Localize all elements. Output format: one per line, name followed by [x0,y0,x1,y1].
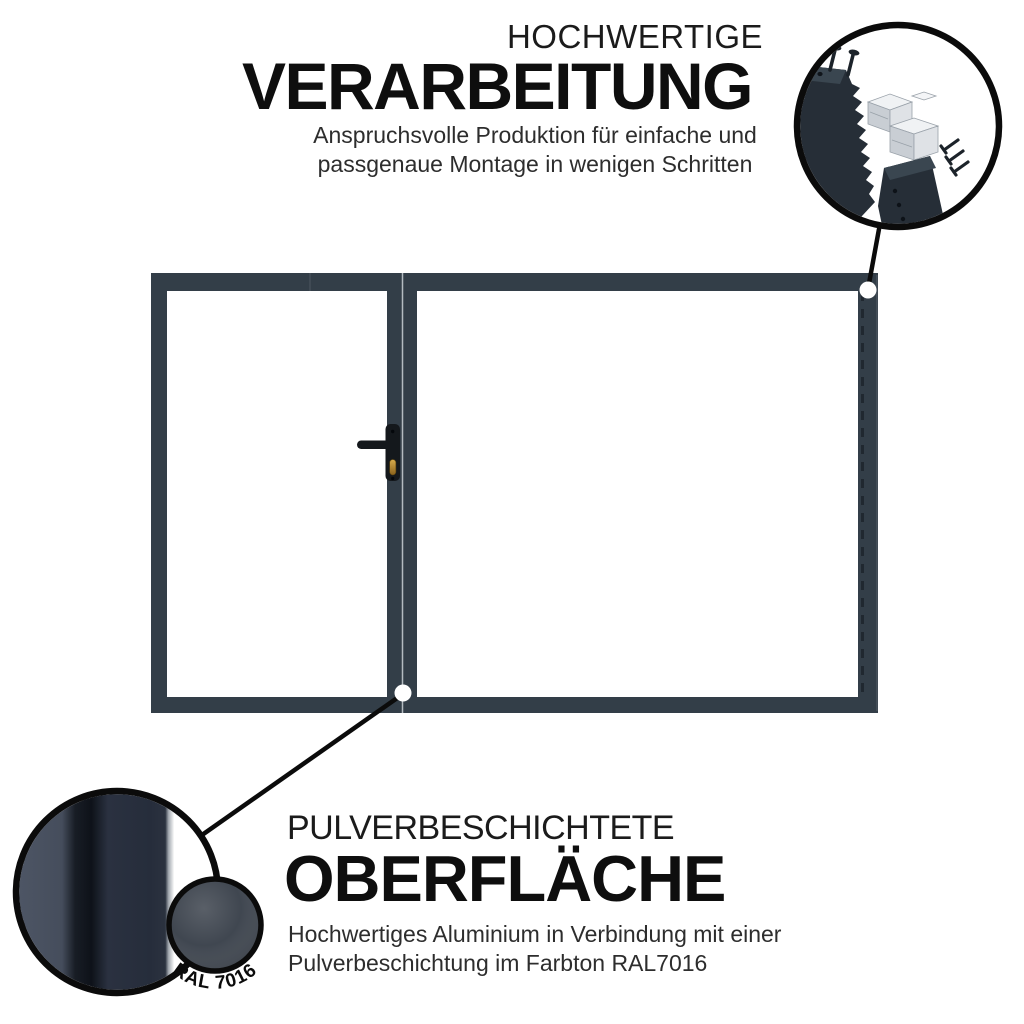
handle-screw-bottom [391,477,394,480]
top-desc-line1: Anspruchsvolle Produktion für einfache u… [313,122,757,148]
frame-profile [151,273,878,713]
top-callout-title: VERARBEITUNG [242,53,752,119]
door-frame [151,273,878,713]
door-handle [357,424,400,481]
lock-cylinder-keyhole [390,460,396,476]
handle-screw-top [391,430,394,433]
bottom-desc-line1: Hochwertiges Aluminium in Verbindung mit… [288,921,781,947]
bottom-callout-title: OBERFLÄCHE [284,846,725,911]
product-infographic: RAL 7016 HOCHWERTIGE VERARBEITUNG Anspru… [0,0,1024,1024]
top-desc-line2: passgenaue Montage in wenigen Schritten [318,151,753,177]
anchor-dot-bottom [395,685,412,702]
anchor-dot-top [860,282,877,299]
bottom-callout-description: Hochwertiges Aluminium in Verbindung mit… [288,920,781,978]
top-callout-description: Anspruchsvolle Produktion für einfache u… [313,121,757,179]
detail-circle-corner [766,25,999,254]
ral-swatch [169,879,261,971]
bottom-desc-line2: Pulverbeschichtung im Farbton RAL7016 [288,950,707,976]
